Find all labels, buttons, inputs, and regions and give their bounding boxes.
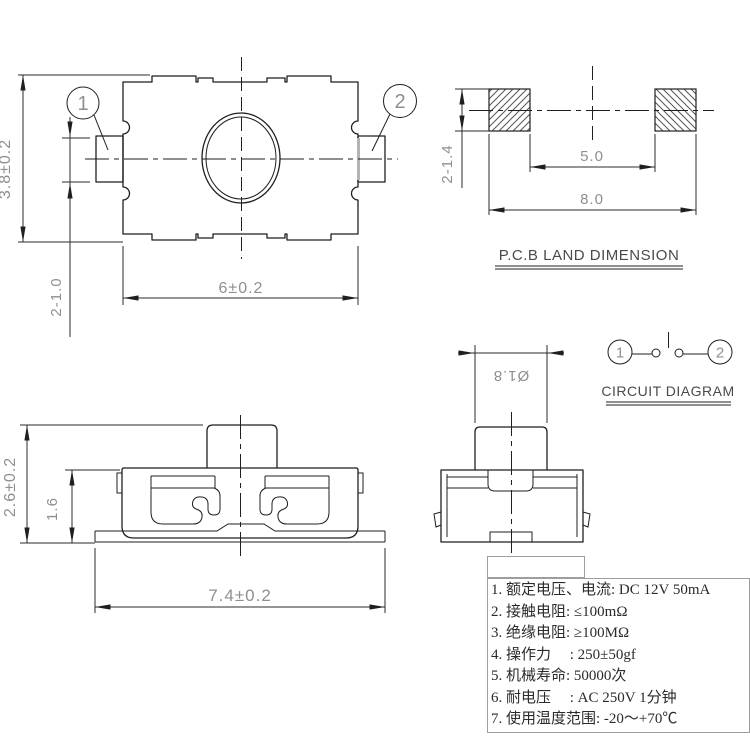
top-view-body-outline xyxy=(123,76,358,240)
pcb-land-title: P.C.B LAND DIMENSION xyxy=(499,247,680,264)
end-view: Ø1.8 xyxy=(434,345,590,556)
spec-item-insulation-resistance: 3. 绝缘电阻: ≥100MΩ xyxy=(491,623,749,645)
circuit-contact xyxy=(652,349,660,357)
callout-2-leader xyxy=(372,114,390,151)
front-internal-contact-right xyxy=(260,476,329,524)
callout-2-label: 2 xyxy=(394,91,405,113)
front-view: 2.6±0.2 1.6 7.4±0.2 xyxy=(2,415,385,613)
front-side-tab-right xyxy=(358,473,363,493)
specs-title-box: 技术参数: xyxy=(487,556,585,578)
spec-item-rated-voltage: 1. 额定电压、电流: DC 12V 50mA xyxy=(491,580,749,602)
callout-1-label: 1 xyxy=(77,93,88,115)
circuit-title: CIRCUIT DIAGRAM xyxy=(601,383,734,399)
pcb-land-view: 2-1.4 5.0 8.0 P.C.B LAND DIMENSION xyxy=(439,66,714,269)
circuit-diagram: 1 2 CIRCUIT DIAGRAM xyxy=(601,332,734,405)
dim-top-body-width: 6±0.2 xyxy=(219,280,264,297)
circuit-terminal-2-label: 2 xyxy=(716,345,724,362)
dim-front-base-width: 7.4±0.2 xyxy=(208,586,272,605)
dim-top-height: 3.8±0.2 xyxy=(0,139,14,199)
dim-front-body-height: 1.6 xyxy=(44,497,61,521)
spec-item-mechanical-life: 5. 机械寿命: 50000次 xyxy=(491,666,749,688)
top-view: 1 2 3.8±0.2 2-1.0 6±0.2 xyxy=(0,57,417,337)
dim-top-pad-width: 2-1.0 xyxy=(48,277,65,316)
dim-end-button-diameter: Ø1.8 xyxy=(493,367,530,384)
end-terminal-left xyxy=(434,512,441,527)
circuit-contact xyxy=(675,349,683,357)
front-button xyxy=(207,425,277,468)
front-internal-contact-left xyxy=(151,476,220,524)
spec-item-contact-resistance: 2. 接触电阻: ≤100mΩ xyxy=(491,602,749,624)
dim-pcb-pitch-inner: 5.0 xyxy=(580,148,604,165)
dim-pcb-pad-size: 2-1.4 xyxy=(439,144,456,183)
specs-box: 1. 额定电压、电流: DC 12V 50mA 2. 接触电阻: ≤100mΩ … xyxy=(487,578,750,733)
spec-item-withstand-voltage: 6. 耐电压 : AC 250V 1分钟 xyxy=(491,688,749,710)
dim-pcb-pitch-outer: 8.0 xyxy=(580,191,604,208)
spec-item-temperature-range: 7. 使用温度范围: -20～+70℃ xyxy=(491,709,749,731)
datasheet-page: 1 2 3.8±0.2 2-1.0 6±0.2 xyxy=(0,0,750,750)
end-button-pocket xyxy=(488,470,533,491)
dim-front-total-height: 2.6±0.2 xyxy=(2,457,19,517)
circuit-terminal-1-label: 1 xyxy=(616,345,624,362)
spec-item-operating-force: 4. 操作力 : 250±50gf xyxy=(491,645,749,667)
front-side-tab-left xyxy=(117,473,122,493)
end-terminal-right xyxy=(583,512,590,527)
